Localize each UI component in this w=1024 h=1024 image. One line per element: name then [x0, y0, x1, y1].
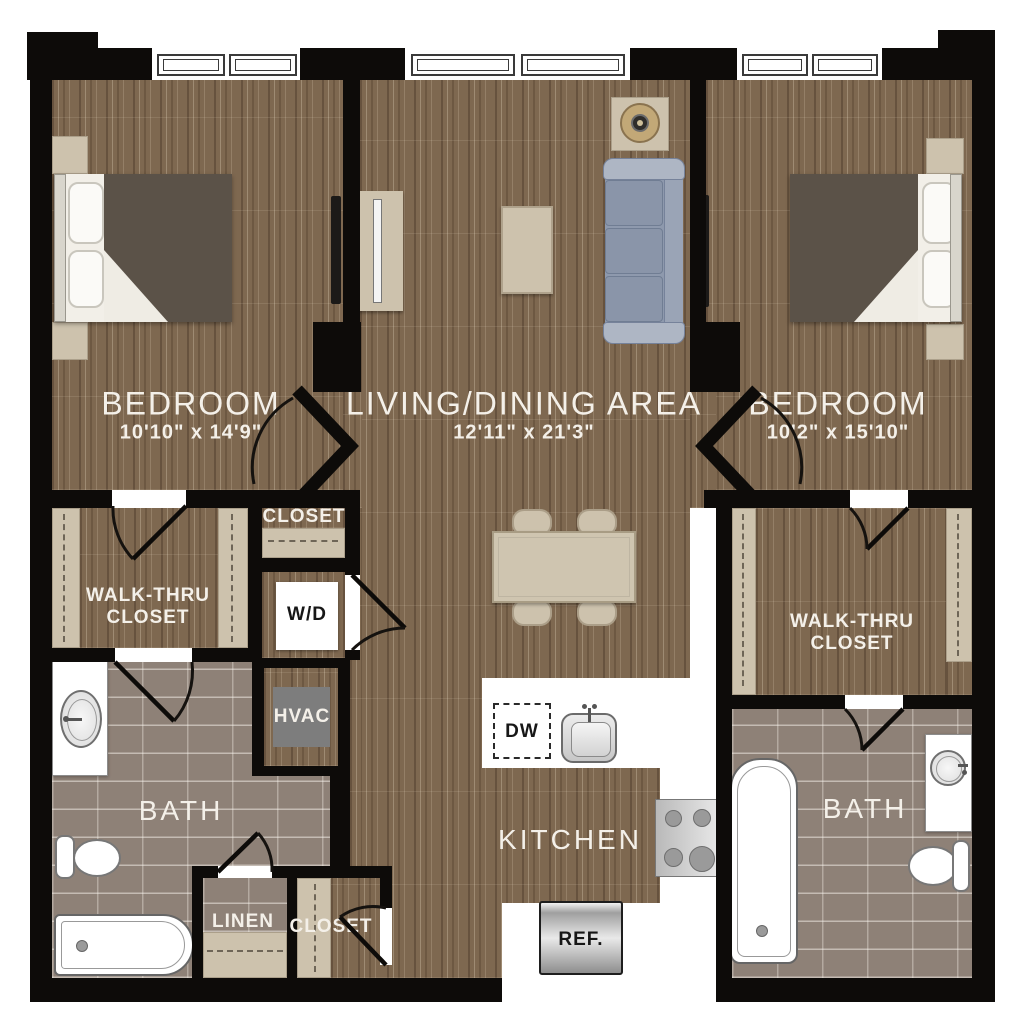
drain-icon: [76, 940, 88, 952]
appliance-label-ref: REF.: [558, 929, 603, 951]
dining-chair: [577, 599, 617, 626]
bathtub: [54, 914, 194, 976]
coffee-table: [501, 206, 553, 294]
wall-walkthru-right-west: [716, 508, 732, 709]
appliance-label-dw: DW: [505, 721, 539, 743]
door-threshold: [345, 575, 360, 650]
wall-block-left: [313, 322, 361, 392]
room-dims-bedroom-right: 10'2" x 15'10": [767, 422, 910, 445]
wall-bottom: [716, 978, 995, 1002]
room-label-bath-left: BATH: [139, 795, 224, 827]
wall-living-bedroom-right: [690, 80, 706, 322]
toilet: [55, 835, 75, 879]
nightstand: [52, 136, 88, 174]
door-threshold: [112, 490, 186, 508]
walkthru-left-shelf-west: [52, 508, 80, 648]
sofa-cushion: [605, 276, 663, 322]
closet-rod-line: [268, 540, 338, 542]
window: [152, 48, 300, 80]
linen-shelf: [203, 932, 287, 978]
wall-top: [298, 48, 407, 80]
walkthru-right-shelf-west: [732, 508, 756, 695]
nightstand: [52, 322, 88, 360]
dining-chair: [512, 599, 552, 626]
room-label-bath-right: BATH: [823, 793, 908, 825]
bed: [54, 174, 232, 322]
sofa-armrest: [603, 322, 685, 344]
faucet-icon: [962, 770, 967, 775]
sofa: [603, 158, 685, 344]
burner: [689, 846, 715, 872]
window: [737, 48, 882, 80]
faucet-icon: [582, 704, 587, 709]
burner: [664, 848, 683, 867]
room-label-walkthru-right: WALK-THRU CLOSET: [777, 611, 927, 655]
wall-top: [880, 48, 942, 80]
bed-headboard: [54, 174, 66, 322]
wall-bath-left-east: [330, 776, 350, 866]
sofa-armrest: [603, 158, 685, 180]
stove: [655, 799, 717, 877]
room-dims-living-dining: 12'11" x 21'3": [453, 422, 594, 445]
dining-table: [492, 531, 636, 603]
room-dims-bedroom-left: 10'10" x 14'9": [120, 422, 263, 445]
tv-on-console: [373, 199, 382, 303]
wall-closet-lower-east: [380, 878, 392, 908]
wall-bedroom-left-living: [343, 80, 360, 322]
wall-bedroom-right-south: [704, 490, 850, 508]
toilet: [952, 840, 970, 892]
wall-bottom: [30, 978, 502, 1002]
wall-bedroom-right-south: [908, 490, 972, 508]
wall-walkthru-right-south: [903, 695, 972, 709]
nightstand: [926, 138, 964, 174]
room-label-walkthru-left: WALK-THRU CLOSET: [78, 585, 218, 629]
door-threshold: [218, 866, 272, 878]
walkthru-left-shelf-east: [218, 508, 248, 648]
toilet-bowl: [73, 839, 121, 877]
room-label-bedroom-left: BEDROOM: [101, 386, 280, 423]
wall-bedroom-left-south: [52, 490, 112, 508]
nightstand: [926, 324, 964, 360]
door-threshold: [845, 695, 903, 709]
closet-upper-shelf: [262, 528, 345, 558]
burner: [665, 810, 682, 827]
wall-bath-right-west: [716, 709, 732, 1002]
wall-closet-column: [248, 508, 262, 658]
window: [405, 48, 630, 80]
wall-bath-left-north: [192, 648, 252, 662]
toilet-bowl: [908, 846, 958, 886]
door-threshold: [115, 648, 192, 662]
table-lamp: [620, 103, 660, 143]
wall-left: [30, 48, 52, 1002]
faucet-icon: [588, 708, 591, 722]
sofa-back: [664, 180, 683, 322]
room-label-living-dining: LIVING/DINING AREA: [346, 386, 702, 423]
bed-headboard: [950, 174, 962, 322]
door-threshold: [850, 490, 908, 508]
wall-top: [90, 48, 154, 80]
appliance-label-hvac: HVAC: [274, 706, 330, 728]
wall-wd-east: [345, 490, 360, 575]
walkthru-right-floor-south: [946, 662, 972, 695]
faucet-icon: [592, 704, 597, 709]
bed: [790, 174, 962, 322]
room-label-bedroom-right: BEDROOM: [748, 386, 927, 423]
door-threshold: [380, 908, 392, 965]
closet-rod-line: [63, 514, 65, 642]
faucet-icon: [68, 718, 82, 721]
wall-linen-west: [192, 878, 203, 978]
pillow: [68, 182, 104, 244]
wall-bath-left-north: [52, 648, 115, 662]
pillow: [68, 250, 104, 308]
closet-rod-line: [957, 514, 959, 656]
wall-walkthru-right-south: [732, 695, 845, 709]
walkthru-right-floor: [756, 508, 946, 695]
closet-rod-line: [742, 514, 744, 686]
wall-bath-left-south: [192, 866, 218, 878]
drain-icon: [756, 925, 768, 937]
bathtub: [730, 758, 798, 964]
appliance-label-wd: W/D: [287, 604, 327, 626]
wall-block-right: [690, 322, 740, 392]
sofa-cushion: [605, 228, 663, 274]
floor-plan: BEDROOM 10'10" x 14'9" LIVING/DINING ARE…: [0, 0, 1024, 1024]
faucet-icon: [958, 764, 968, 767]
sofa-cushion: [605, 180, 663, 226]
bath-sink: [930, 750, 966, 786]
wall-tv: [331, 196, 341, 304]
wall-right: [972, 48, 995, 1002]
room-label-closet-lower: CLOSET: [289, 916, 372, 938]
burner: [693, 809, 711, 827]
closet-rod-line: [207, 950, 283, 952]
wall-closet-wd-divider: [248, 558, 348, 572]
wall-bath-left-south: [272, 866, 392, 878]
closet-rod-line: [231, 514, 233, 642]
room-label-kitchen: KITCHEN: [498, 824, 642, 856]
room-label-closet-upper: CLOSET: [262, 506, 345, 528]
room-label-linen: LINEN: [212, 911, 274, 933]
walkthru-right-shelf-east: [946, 508, 972, 662]
wall-top: [628, 48, 739, 80]
